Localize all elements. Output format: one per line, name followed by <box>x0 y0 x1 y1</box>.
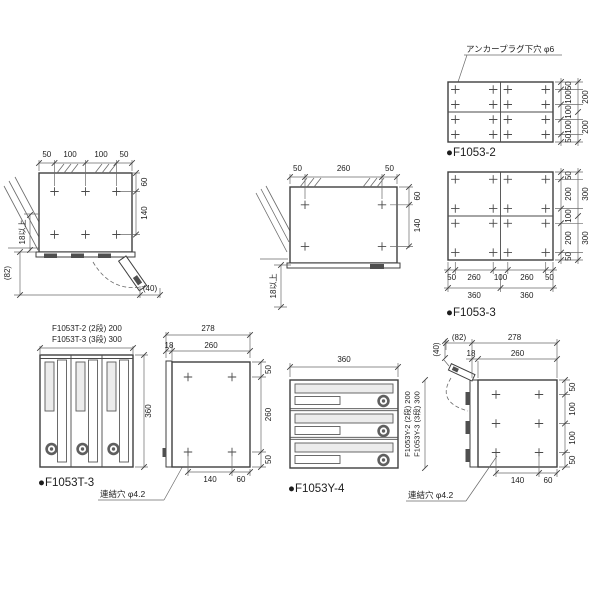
model-label-f1053-3: ●F1053-3 <box>446 307 496 319</box>
dim-label: 50 <box>568 382 577 391</box>
dim-label: 200 <box>564 231 573 245</box>
dim-label: 100 <box>564 209 573 223</box>
model-label-f1053t-3: ●F1053T-3 <box>38 477 94 489</box>
dim-label: 50 <box>447 273 456 282</box>
clearance-note: 18以上 <box>269 274 278 299</box>
dim-label: 140 <box>203 475 217 484</box>
dim-label: 200 <box>581 90 590 104</box>
dim-label: 100 <box>568 402 577 416</box>
link-hole-callout: 連結穴 φ4.2 <box>100 489 145 499</box>
t-side-body <box>172 362 250 467</box>
model-label-f1053-2: ●F1053-2 <box>446 147 496 159</box>
wall-hatch-marks <box>57 164 116 173</box>
open-door-flap <box>448 364 475 381</box>
dim-label: (40) <box>432 342 441 357</box>
dim-label: 360 <box>144 404 153 418</box>
lock-dial <box>107 443 119 455</box>
dim-label: 18 <box>467 349 476 358</box>
anchor-hole-callout: アンカープラグ下穴 φ6 <box>466 44 555 54</box>
y-side-view: (82) 278 18 260 50 100 100 50 140 60 (40… <box>406 333 577 501</box>
lock-dial <box>45 443 57 455</box>
width-note-line2: F1053T-3 (3段) 300 <box>52 334 122 344</box>
lock-tab <box>71 254 84 259</box>
model-label-f1053y-4: ●F1053Y-4 <box>288 483 345 495</box>
lock-tab <box>44 254 57 259</box>
y-side-body <box>478 380 557 467</box>
dim-label: 18 <box>165 341 174 350</box>
dim-label: 50 <box>564 251 573 260</box>
t-top-view: 50 100 100 50 60 140 18以上 (82) (40) <box>3 150 163 298</box>
dim-label: 60 <box>237 475 246 484</box>
dim-label: 100 <box>494 273 508 282</box>
dim-label: 300 <box>581 187 590 201</box>
name-plate <box>295 456 340 464</box>
dim-label: 60 <box>544 476 553 485</box>
f1053-3-plate-view: 50 200 100 200 50 300 300 50 260 100 260… <box>444 168 590 319</box>
dim-label: 100 <box>564 120 573 134</box>
dim-label: 140 <box>413 218 422 232</box>
door-edge <box>470 380 478 467</box>
lock-tab <box>370 264 384 269</box>
dim-label: 50 <box>568 455 577 464</box>
dim-label: 50 <box>264 365 273 374</box>
lock-tab <box>163 448 167 457</box>
dim-label: 260 <box>264 407 273 421</box>
dim-label: 360 <box>520 291 534 300</box>
dim-label: 200 <box>564 187 573 201</box>
mail-slot <box>45 362 54 411</box>
width-note-line1: F1053T-2 (2段) 200 <box>52 323 122 333</box>
door-panel <box>120 360 129 462</box>
dim-label: 300 <box>581 231 590 245</box>
dim-label: (82) <box>452 333 467 342</box>
dim-label: 50 <box>564 171 573 180</box>
dim-label: 100 <box>94 150 108 159</box>
height-note-line2: F1053Y-3 (3段) 300 <box>412 391 422 457</box>
door-panel <box>58 360 67 462</box>
lock-tab <box>466 449 471 462</box>
dim-label: 50 <box>545 273 554 282</box>
y-top-view: 50 260 50 60 140 18以上 <box>256 164 422 310</box>
dim-label: 278 <box>201 324 215 333</box>
mail-slot <box>107 362 116 411</box>
dim-label: 260 <box>467 273 481 282</box>
height-note-line1: F1053Y-2 (2段) 200 <box>402 391 412 457</box>
dim-label: (40) <box>143 284 158 293</box>
dim-label: 360 <box>337 355 351 364</box>
mail-slot <box>295 443 393 452</box>
drawing-canvas: 50 100 100 50 60 140 18以上 (82) (40) 50 2… <box>0 0 600 600</box>
mail-slot <box>76 362 85 411</box>
dim-label: 50 <box>120 150 129 159</box>
lock-dial <box>76 443 88 455</box>
link-hole-callout: 連結穴 φ4.2 <box>408 490 453 500</box>
name-plate <box>295 397 340 405</box>
dim-label: 50 <box>293 164 302 173</box>
name-plate <box>295 427 340 435</box>
dim-label: 100 <box>564 90 573 104</box>
dim-label: 200 <box>581 120 590 134</box>
dim-label: 260 <box>511 349 525 358</box>
f1053-2-plate-view: アンカープラグ下穴 φ6 50 100 100 100 50 200 200 ●… <box>446 44 590 159</box>
dim-label: 100 <box>63 150 77 159</box>
dim-label: 140 <box>140 206 149 220</box>
dim-label: (82) <box>3 266 12 281</box>
dim-label: 260 <box>337 164 351 173</box>
dim-label: 60 <box>140 177 149 186</box>
wall-section-hatch <box>256 186 290 259</box>
dim-label: 100 <box>568 431 577 445</box>
door-panel <box>89 360 98 462</box>
dim-label: 278 <box>508 333 522 342</box>
clearance-note: 18以上 <box>18 220 27 245</box>
dim-label: 50 <box>564 81 573 90</box>
dim-label: 50 <box>42 150 51 159</box>
dim-label: 50 <box>264 455 273 464</box>
door-edge <box>166 361 172 467</box>
dim-label: 100 <box>564 105 573 119</box>
dim-label: 60 <box>413 191 422 200</box>
t-side-view: 278 18 260 50 260 50 140 60 <box>163 324 274 484</box>
lock-tab <box>466 392 471 405</box>
dim-label: 360 <box>468 291 482 300</box>
dim-label: 50 <box>385 164 394 173</box>
lock-tab <box>466 421 471 434</box>
technical-drawing-sheet: 50 100 100 50 60 140 18以上 (82) (40) 50 2… <box>0 0 600 600</box>
dim-label: 50 <box>564 133 573 142</box>
lock-tab <box>98 254 111 259</box>
door-swing-arc <box>446 378 468 411</box>
mail-slot <box>295 384 393 393</box>
y-front-view: 360 F1053Y-2 (2段) 200 F1053Y-3 (3段) 300 … <box>287 355 428 495</box>
dim-label: 140 <box>511 476 525 485</box>
dim-label: 260 <box>204 341 218 350</box>
wall-hatch-marks <box>300 178 384 187</box>
y-top-view-body <box>290 187 397 263</box>
mail-slot <box>295 414 393 423</box>
dim-label: 260 <box>520 273 534 282</box>
